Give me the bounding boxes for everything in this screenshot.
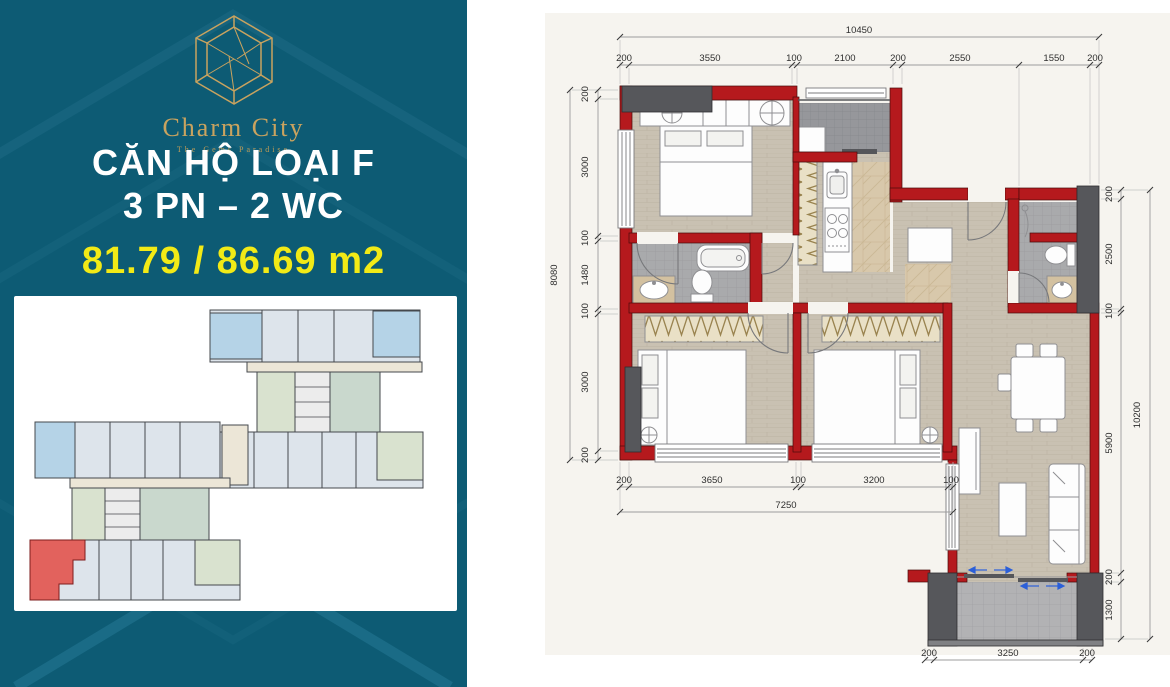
dim-binner-1: 3650: [701, 475, 722, 486]
dim-left-0: 200: [580, 86, 591, 102]
dim-left-6: 200: [580, 447, 591, 463]
dim-top-5: 2550: [949, 53, 970, 64]
dim-bouter-1: 3250: [997, 648, 1018, 659]
dim-top-total: 10450: [846, 25, 872, 36]
dim-binner-4: 100: [943, 475, 959, 486]
entry-cabinet: [908, 228, 952, 262]
dim-top-3: 2100: [834, 53, 855, 64]
area-value: 81.79 / 86.69 m2: [0, 240, 467, 283]
window-bedroom-3: [812, 444, 942, 462]
floor-plan-drawing: 10450 200 3550 100 2100 200 2550 1550 20…: [467, 0, 1170, 687]
dim-right-5: 1300: [1104, 599, 1115, 620]
entry-marble-inset: [905, 264, 951, 304]
ceiling-lamp-icon: [641, 427, 657, 443]
bedroom-bathroom-subtitle: 3 PN – 2 WC: [0, 185, 467, 227]
dim-right-2: 100: [1104, 303, 1115, 319]
dim-top-6: 1550: [1043, 53, 1064, 64]
dim-binner-0: 200: [616, 475, 632, 486]
toilet-icon: [1045, 244, 1075, 266]
info-panel: Charm City The Gems Paradise CĂN HỘ LOẠI…: [0, 0, 467, 687]
charm-city-logo: Charm City The Gems Paradise: [0, 14, 467, 154]
bathroom-sink-icon: [633, 276, 675, 304]
dim-right-4: 200: [1104, 569, 1115, 585]
ceiling-lamp-icon: [922, 427, 938, 443]
dim-top-0: 200: [616, 53, 632, 64]
coffee-table: [999, 483, 1026, 536]
window-laundry: [806, 88, 886, 98]
bathroom-sink-icon: [1047, 276, 1077, 304]
key-plan-wing-lower: [30, 422, 240, 600]
dim-top-7: 200: [1087, 53, 1103, 64]
logo-hexagon-icon: [188, 14, 280, 106]
wardrobe-bedroom-2: [645, 316, 763, 342]
dim-left-4: 100: [580, 303, 591, 319]
dim-right-total: 10200: [1132, 402, 1143, 428]
dim-right-3: 5900: [1104, 432, 1115, 453]
window-bedroom-2: [655, 444, 788, 462]
marketing-floorplan-page: Charm City The Gems Paradise CĂN HỘ LOẠI…: [0, 0, 1170, 687]
dim-left-3: 1480: [580, 264, 591, 285]
dim-bouter-2: 200: [1079, 648, 1095, 659]
floor-plan-panel: 10450 200 3550 100 2100 200 2550 1550 20…: [467, 0, 1170, 687]
dim-binner-2: 100: [790, 475, 806, 486]
washing-machine-icon: [798, 127, 825, 152]
key-plan-map: [14, 296, 457, 611]
dim-top-1: 3550: [699, 53, 720, 64]
apartment-type-title: CĂN HỘ LOẠI F: [0, 142, 467, 184]
kitchen-sink-icon: [827, 169, 847, 198]
stove-icon: [825, 208, 849, 252]
dim-right-0: 200: [1104, 186, 1115, 202]
dim-left-total: 8080: [549, 264, 560, 285]
sofa: [1049, 464, 1085, 564]
dim-right-1: 2500: [1104, 243, 1115, 264]
window-bedroom-1: [618, 130, 634, 228]
dim-top-4: 200: [890, 53, 906, 64]
dining-table: [1011, 357, 1065, 419]
dim-binner-total: 7250: [775, 500, 796, 511]
dim-left-5: 3000: [580, 371, 591, 392]
brand-name: Charm City: [0, 113, 467, 143]
bathtub-icon: [697, 245, 749, 271]
dim-bouter-0: 200: [921, 648, 937, 659]
toilet-icon: [691, 270, 713, 302]
kitchen-cabinet: [798, 162, 817, 265]
dim-left-1: 3000: [580, 156, 591, 177]
key-plan: [14, 296, 457, 611]
balcony-floor: [957, 582, 1077, 640]
dim-left-2: 100: [580, 230, 591, 246]
dim-binner-3: 3200: [863, 475, 884, 486]
tv-console: [959, 428, 980, 494]
dim-top-2: 100: [786, 53, 802, 64]
kitchen-floor: [852, 162, 890, 272]
key-plan-wing-upper: [210, 310, 423, 488]
